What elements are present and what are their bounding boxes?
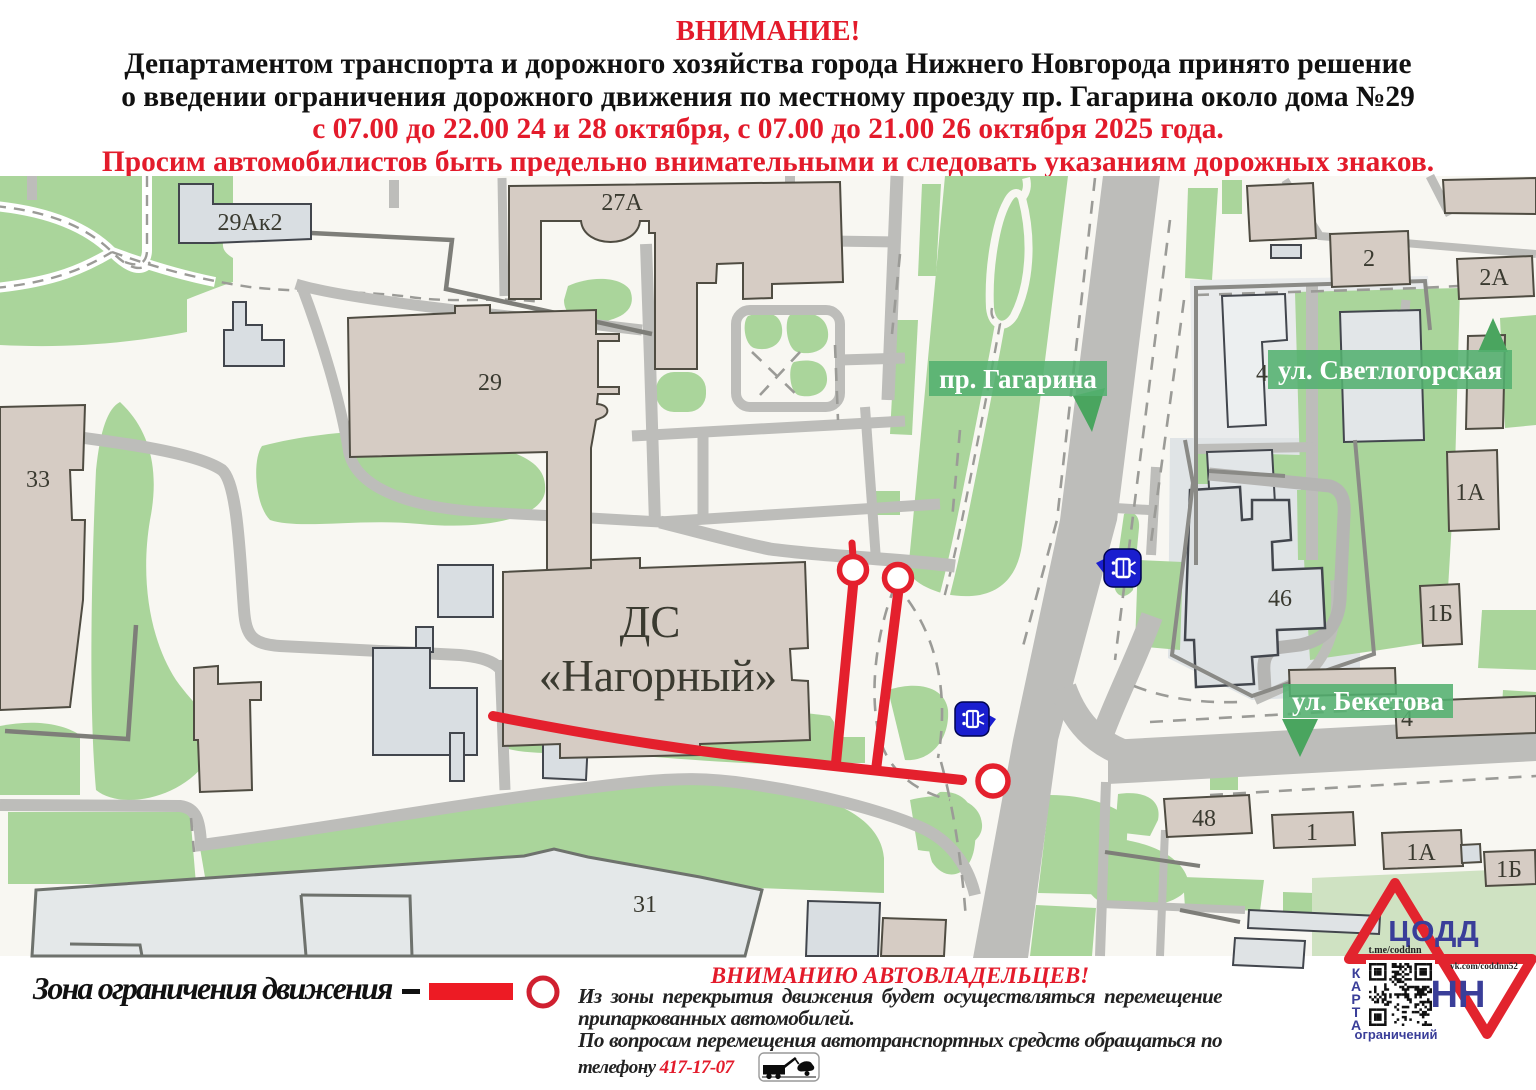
svg-text:t.me/coddnn: t.me/coddnn [1368,945,1422,956]
svg-text:1Б: 1Б [1427,601,1453,627]
svg-text:«Нагорный»: «Нагорный» [539,651,777,701]
svg-text:пр. Гагарина: пр. Гагарина [939,364,1097,394]
svg-text:2А: 2А [1479,265,1509,291]
svg-text:ограничений: ограничений [1355,1027,1438,1042]
svg-text:1А: 1А [1406,840,1436,866]
svg-text:ул. Светлогорская: ул. Светлогорская [1278,355,1502,385]
svg-text:2: 2 [1363,246,1375,272]
svg-text:ДС: ДС [620,597,681,647]
svg-text:31: 31 [633,892,657,918]
svg-text:1Б: 1Б [1496,857,1522,883]
svg-text:ЦОДД: ЦОДД [1388,917,1480,948]
svg-text:29: 29 [478,370,502,396]
svg-text:48: 48 [1192,806,1216,832]
svg-text:27А: 27А [601,190,643,216]
svg-text:1А: 1А [1455,480,1485,506]
svg-text:1: 1 [1306,820,1318,846]
svg-text:ул. Бекетова: ул. Бекетова [1292,686,1444,716]
svg-text:4: 4 [1256,361,1268,387]
svg-text:29Ак2: 29Ак2 [218,210,283,236]
svg-text:НН: НН [1431,974,1486,1016]
svg-text:vk.com/coddnn52: vk.com/coddnn52 [1450,961,1518,971]
svg-text:33: 33 [26,467,50,493]
svg-text:46: 46 [1268,586,1292,612]
